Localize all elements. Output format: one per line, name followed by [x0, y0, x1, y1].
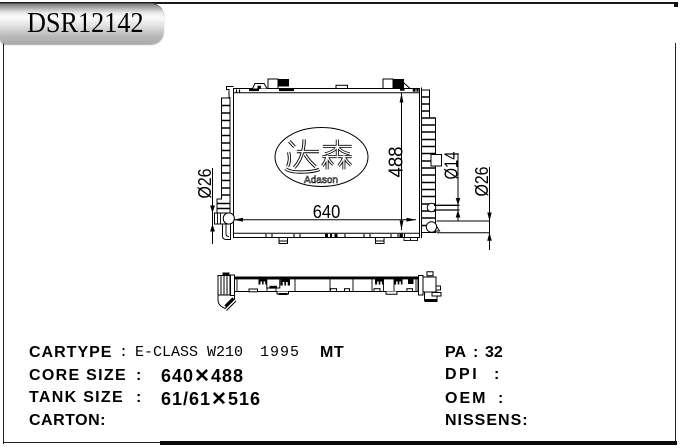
svg-text:Ø26: Ø26 [472, 167, 492, 197]
svg-text:Ø14: Ø14 [442, 152, 462, 180]
svg-text:Adason: Adason [304, 175, 338, 186]
svg-text:Ø26: Ø26 [195, 169, 215, 199]
svg-text:640: 640 [313, 201, 341, 222]
svg-text:488: 488 [385, 147, 408, 178]
